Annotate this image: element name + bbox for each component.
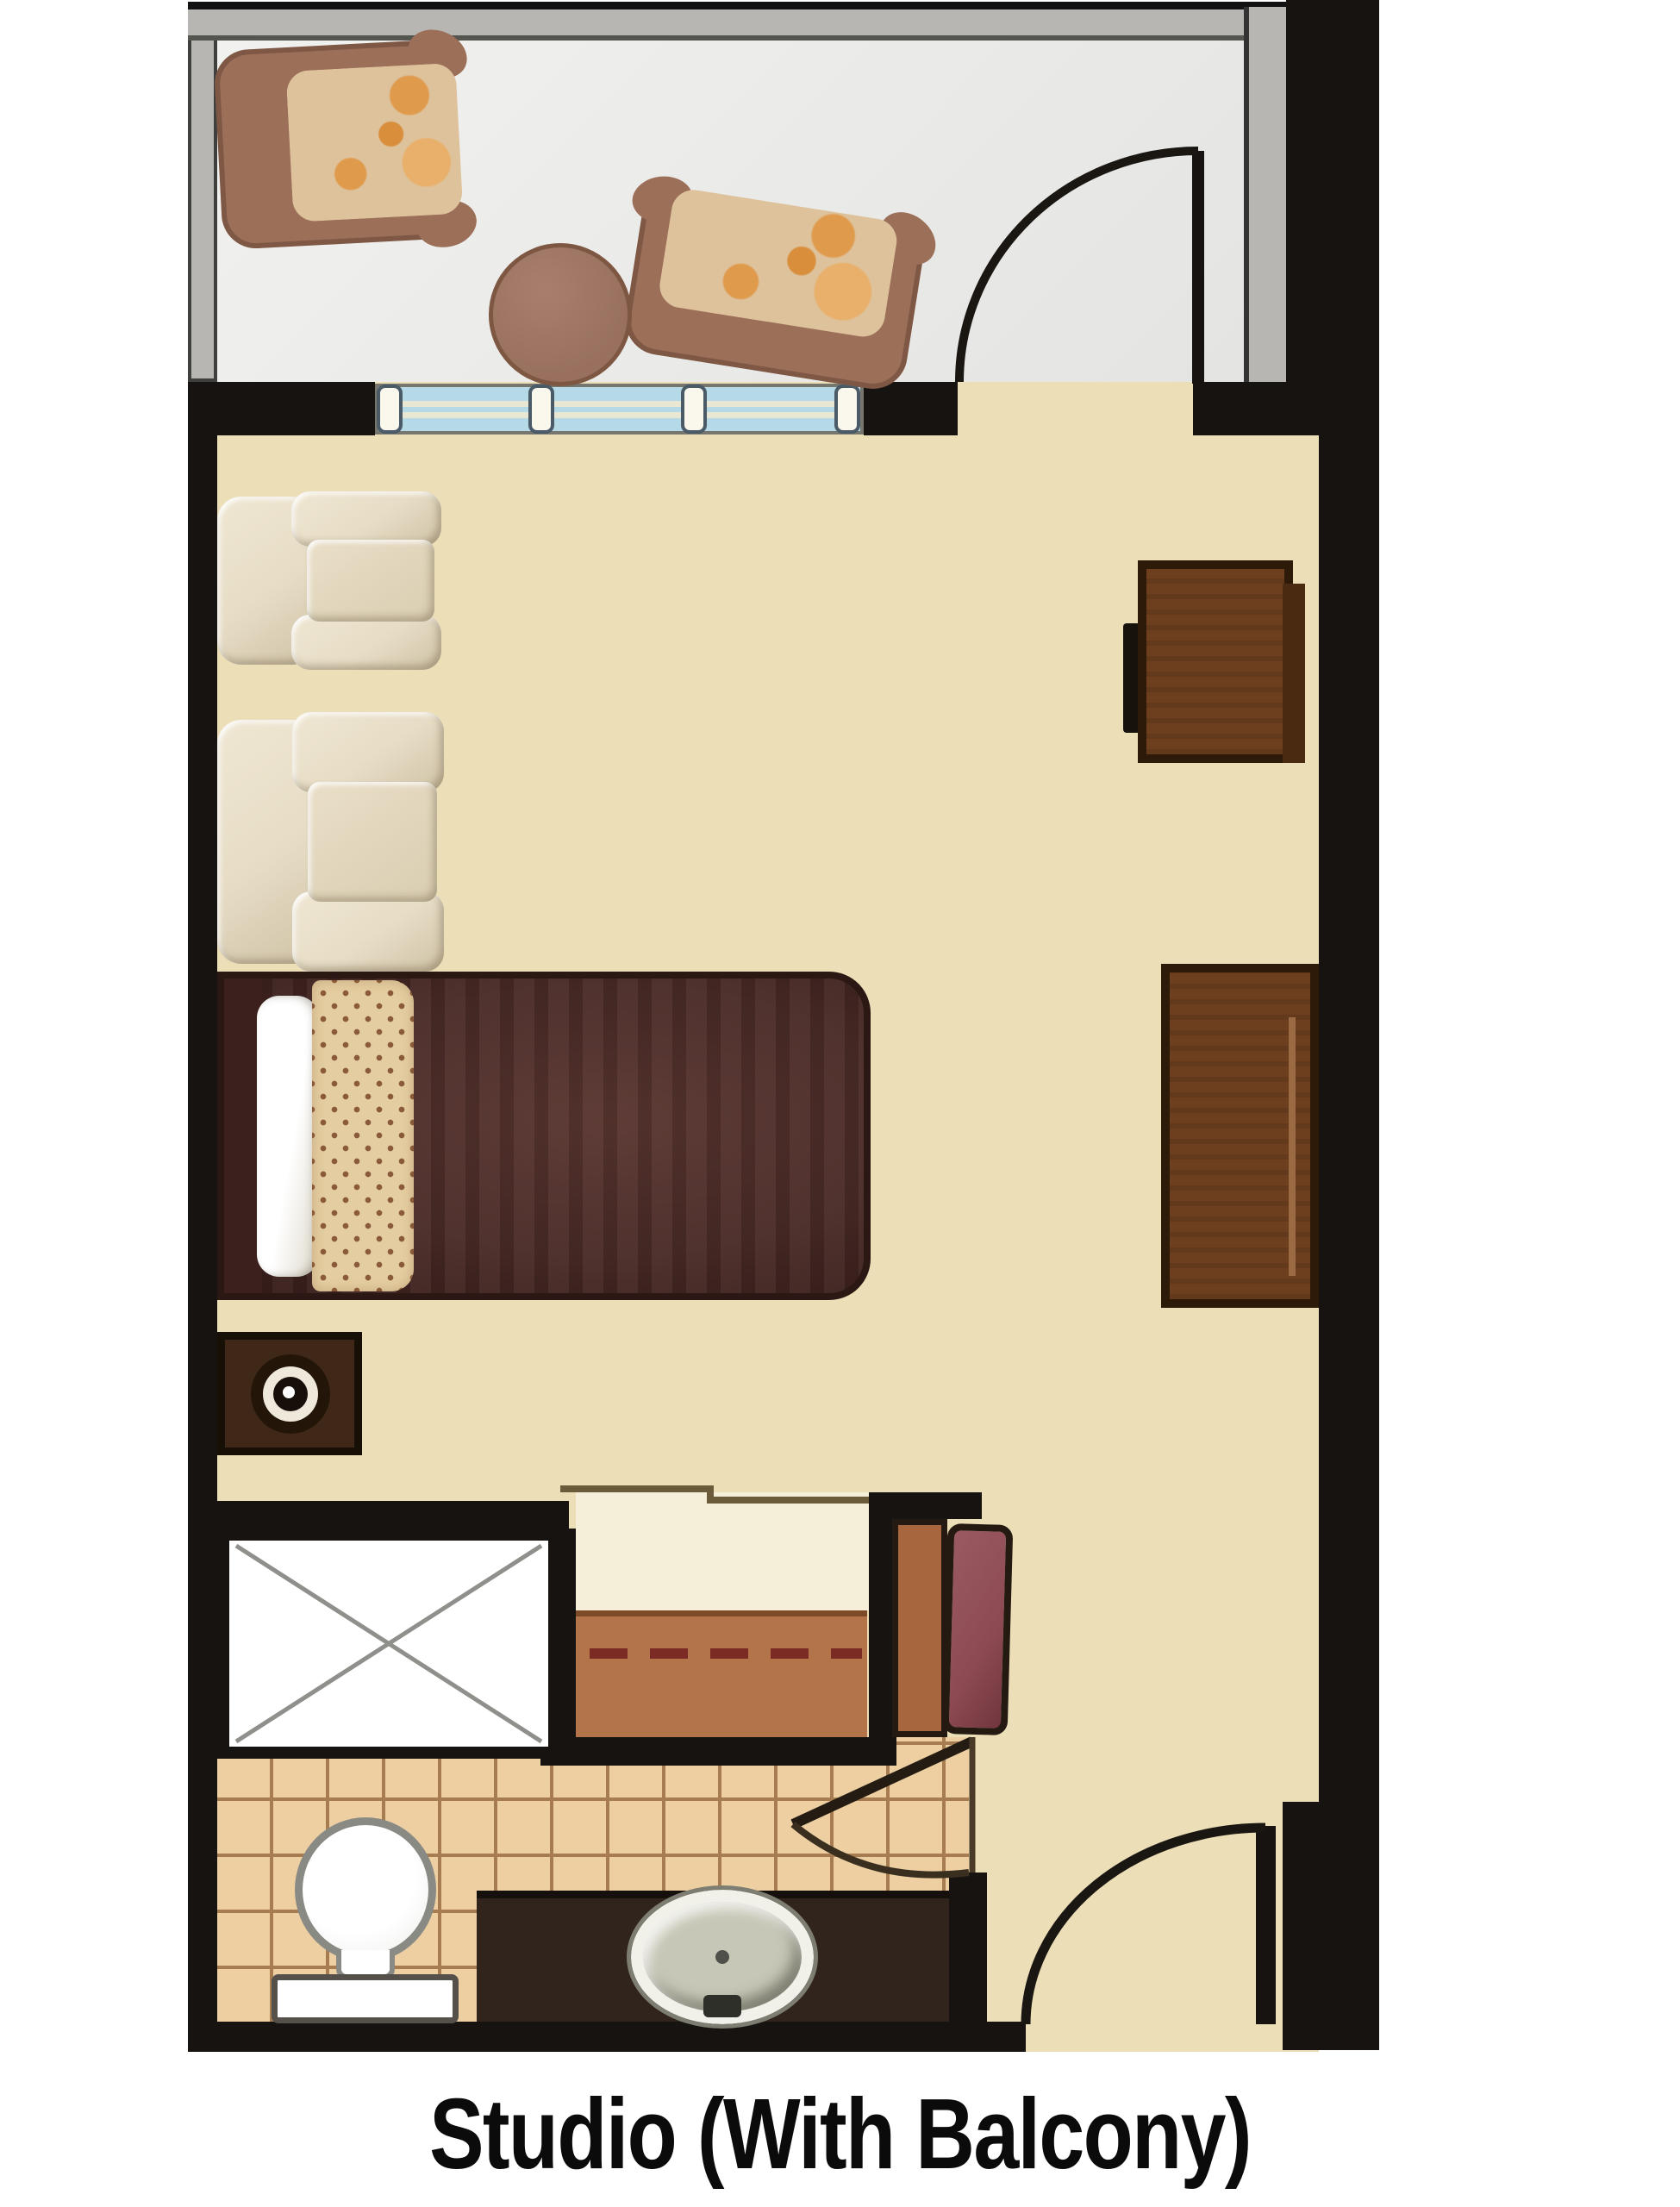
bathroom-door-leaf <box>793 1741 972 1824</box>
door-swing-overlay <box>0 0 1680 2207</box>
plan-title: Studio (With Balcony) <box>151 2076 1528 2191</box>
entry-door-arc <box>1026 1828 1265 2024</box>
balcony-door-arc <box>959 151 1198 382</box>
floor-plan-page: Studio (With Balcony) <box>0 0 1680 2207</box>
bathroom-door-arc <box>793 1824 969 1875</box>
